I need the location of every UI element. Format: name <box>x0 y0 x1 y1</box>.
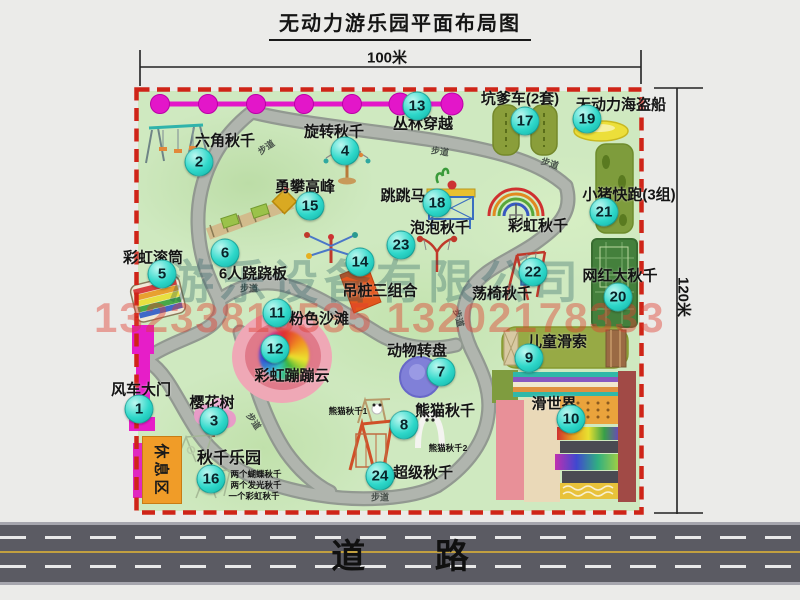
marker-3: 3 <box>200 407 229 436</box>
rest-area: 休息区 <box>142 436 182 504</box>
label-jump-horse: 跳跳马 <box>380 185 425 206</box>
slide-world-icon <box>492 370 636 502</box>
marker-2: 2 <box>185 148 214 177</box>
marker-7: 7 <box>427 358 456 387</box>
marker-23: 23 <box>387 231 416 260</box>
label-pink-beach: 粉色沙滩 <box>289 308 349 329</box>
label-panda-swing-2: 熊猫秋千2 <box>429 442 468 454</box>
marker-22: 22 <box>519 258 548 287</box>
marker-20: 20 <box>604 283 633 312</box>
marker-19: 19 <box>573 105 602 134</box>
marker-6: 6 <box>211 239 240 268</box>
label-hex-swing: 六角秋千 <box>195 130 255 151</box>
label-rainbow-swing: 彩虹秋千 <box>508 215 568 236</box>
marker-16: 16 <box>197 465 226 494</box>
label-panda-swing-1: 熊猫秋千1 <box>329 405 368 417</box>
label-rainbow-cloud: 彩虹蹦蹦云 <box>254 365 329 386</box>
marker-4: 4 <box>331 137 360 166</box>
walkway-tag: 步道 <box>371 491 389 504</box>
park-layout-map: 无动力游乐园平面布局图 <box>0 0 800 600</box>
marker-12: 12 <box>261 335 290 364</box>
marker-15: 15 <box>296 192 325 221</box>
marker-21: 21 <box>590 198 619 227</box>
marker-24: 24 <box>366 462 395 491</box>
label-pit-cars: 坑爹车(2套) <box>481 88 559 109</box>
label-super-swing: 超级秋千 <box>393 462 453 483</box>
marker-11: 11 <box>263 299 292 328</box>
walkway-tag: 步道 <box>430 143 450 158</box>
marker-9: 9 <box>515 344 544 373</box>
marker-5: 5 <box>148 260 177 289</box>
marker-13: 13 <box>403 92 432 121</box>
marker-1: 1 <box>125 395 154 424</box>
marker-10: 10 <box>557 405 586 434</box>
marker-8: 8 <box>390 411 419 440</box>
marker-17: 17 <box>511 107 540 136</box>
label-swing-park-note-3: 一个彩虹秋千 <box>228 490 279 502</box>
rest-area-label: 休息区 <box>152 443 173 497</box>
label-panda-swing: 熊猫秋千 <box>415 400 475 421</box>
label-rotary-swing: 旋转秋千 <box>304 121 364 142</box>
marker-14: 14 <box>346 248 375 277</box>
label-chair-swing: 荡椅秋千 <box>472 283 532 304</box>
label-bubble-swing: 泡泡秋千 <box>410 217 470 238</box>
marker-18: 18 <box>423 189 452 218</box>
label-hanging-piles: 吊桩三组合 <box>342 280 417 301</box>
